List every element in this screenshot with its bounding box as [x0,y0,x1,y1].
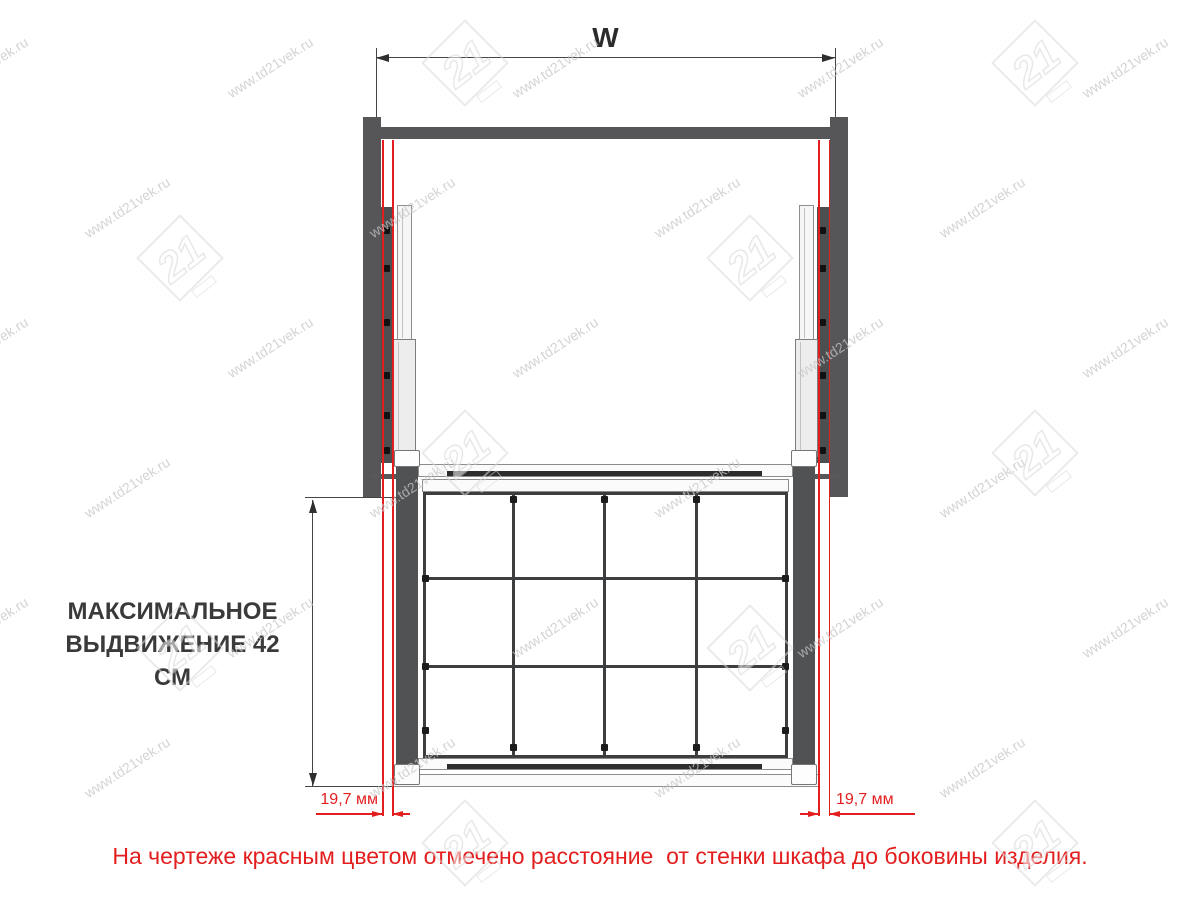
rail-screw-icon [384,265,390,272]
product-bottom-cap-left [394,764,420,785]
watermark-text: www.td21vek.ru [0,314,31,381]
product-top-cap-left [394,450,420,467]
gap-dimension-label-right: 19,7 мм [836,791,926,809]
rail-groove-line [804,208,805,338]
product-side-panel-left [396,465,418,766]
rail-screw-icon [820,412,826,419]
rail-screw-icon [384,372,390,379]
wire-joint-dot [601,496,608,503]
rail-groove-line [402,208,403,338]
width-arrow-left-icon [376,54,389,62]
extension-arrow-down-icon [309,773,317,786]
gap-arrow-icon [808,811,819,817]
red-reference-line-product-left [392,140,394,816]
rail-screw-icon [820,227,826,234]
width-arrow-right-icon [822,54,835,62]
rail-groove-line [800,342,801,454]
watermark-text: www.td21vek.ru [1079,594,1171,661]
watermark-text: www.td21vek.ru [936,454,1028,521]
watermark-text: www.td21vek.ru [1079,314,1171,381]
watermark-text: www.td21vek.ru [81,454,173,521]
slide-rail-upper-left [397,205,412,341]
watermark-logo-diamond-icon [991,19,1079,107]
rail-screw-icon [820,319,826,326]
width-dimension-line [376,57,835,58]
cabinet-side-panel-right [830,117,848,497]
wire-joint-dot [782,727,789,734]
watermark-logo-21-icon: 21 [971,389,1100,518]
extension-dim-vertical-line [312,500,313,787]
wire-joint-dot [693,496,700,503]
rail-screw-icon [384,447,390,454]
gap-arrow-icon [392,811,403,817]
watermark-logo: 21 [990,408,1082,500]
watermark-logo-banner-icon [476,80,502,103]
watermark-logo-diamond-icon [706,214,794,302]
watermark-text: www.td21vek.ru [224,314,316,381]
basket-bottom-crossbar [392,774,819,787]
basket-top-rail-inner [422,479,789,492]
wire-joint-dot [510,496,517,503]
red-note-text: На чертеже красным цветом отмечено расст… [0,843,1200,870]
basket-wire-vertical [512,495,515,755]
rail-screw-icon [820,372,826,379]
width-dimension-label: W [376,22,835,52]
slide-rail-lower-left [393,339,416,457]
gap-dim-line-right [829,813,915,815]
watermark-logo-21-icon: 21 [971,0,1100,129]
rail-screw-icon [384,319,390,326]
watermark-logo-21-icon: 21 [401,779,530,900]
watermark-logo-21-icon: 21 [116,194,245,323]
watermark-text: www.td21vek.ru [81,174,173,241]
rail-screw-icon [820,447,826,454]
wire-joint-dot [510,744,517,751]
watermark-logo-banner-icon [1046,80,1072,103]
watermark-logo-21-icon: 21 [401,0,530,129]
watermark-logo-banner-icon [191,275,217,298]
red-reference-line-product-right [818,140,820,816]
basket-top-rail-bar [447,471,762,476]
watermark-logo-diamond-icon [991,409,1079,497]
watermark-text: www.td21vek.ru [1079,34,1171,101]
watermark-logo: 21 [705,213,797,305]
red-reference-line-cabinet-right [829,140,831,816]
cabinet-side-panel-left [363,117,381,497]
extension-arrow-up-icon [309,500,317,513]
watermark-logo-21-icon: 21 [686,194,815,323]
watermark-logo-diamond-icon [706,604,794,692]
drawing-canvas: W [0,0,1200,900]
watermark-text: www.td21vek.ru [224,34,316,101]
watermark-text: www.td21vek.ru [936,174,1028,241]
max-extension-label: МАКСИМАЛЬНОЕ ВЫДВИЖЕНИЕ 42 СМ [45,595,300,694]
width-extension-line-right [835,48,836,121]
watermark-text: www.td21vek.ru [651,174,743,241]
watermark-text: www.td21vek.ru [509,314,601,381]
watermark-logo-diamond-icon [136,214,224,302]
gap-dimension-label-left: 19,7 мм [298,791,378,809]
slide-rail-lower-right [795,339,818,457]
rail-screw-icon [384,412,390,419]
wire-joint-dot [422,663,429,670]
wire-joint-dot [601,744,608,751]
wire-joint-dot [782,663,789,670]
gap-arrow-icon [829,811,840,817]
watermark-logo-21-icon: 21 [971,779,1100,900]
watermark-text: www.td21vek.ru [509,594,601,661]
basket-wire-bottom [423,755,788,758]
product-side-panel-right [793,465,815,766]
watermark-logo: 21 [990,18,1082,110]
product-top-cap-right [791,450,817,467]
max-extension-label-line2: ВЫДВИЖЕНИЕ 42 СМ [45,628,300,694]
basket-wire-frame-left [423,492,426,758]
watermark-logo: 21 [705,603,797,695]
basket-bottom-rail-bar [447,764,762,769]
red-reference-line-cabinet-left [382,140,384,816]
cabinet-top-panel [363,127,848,139]
watermark-text: www.td21vek.ru [0,34,31,101]
product-bottom-cap-right [791,764,817,785]
watermark-text: www.td21vek.ru [0,594,31,661]
wire-joint-dot [693,744,700,751]
watermark-logo: 21 [135,213,227,305]
basket-wire-frame-right [785,492,788,758]
basket-wire-vertical [695,495,698,755]
rail-screw-icon [384,227,390,234]
wire-joint-dot [782,575,789,582]
slide-rail-upper-right [799,205,814,341]
rail-groove-line [398,342,399,454]
watermark-text: www.td21vek.ru [81,734,173,801]
gap-arrow-icon [372,811,383,817]
max-extension-label-line1: МАКСИМАЛЬНОЕ [45,595,300,628]
wire-joint-dot [422,575,429,582]
watermark-logo-banner-icon [1046,470,1072,493]
basket-wire-vertical [603,495,606,755]
watermark-text: www.td21vek.ru [936,734,1028,801]
wire-joint-dot [422,727,429,734]
watermark-logo-banner-icon [761,275,787,298]
rail-screw-icon [820,265,826,272]
